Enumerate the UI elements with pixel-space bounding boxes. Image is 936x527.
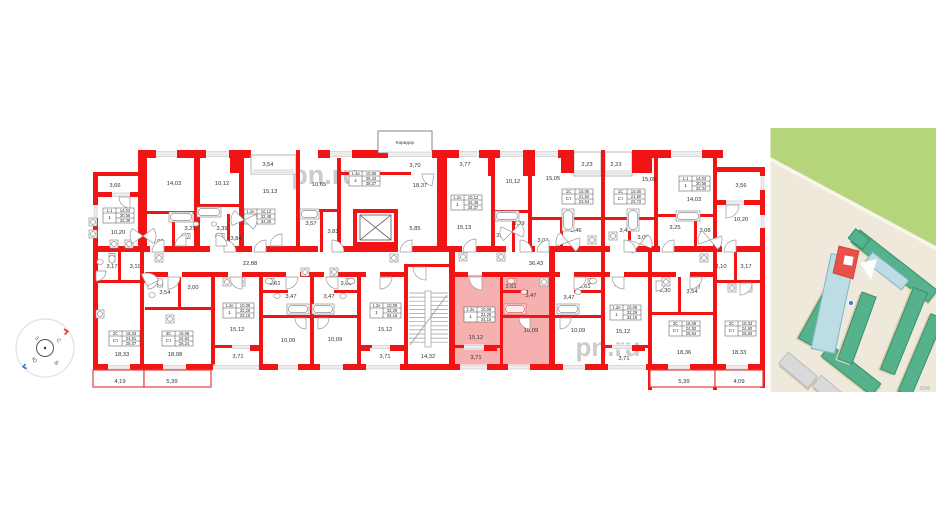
svg-text:3,47: 3,47 [563,295,574,301]
svg-text:3,54: 3,54 [262,162,274,168]
svg-text:1: 1 [456,202,459,208]
svg-text:1.1: 1.1 [107,208,113,213]
svg-text:14,03: 14,03 [167,181,182,187]
svg-text:3,71: 3,71 [379,354,390,360]
svg-text:10,09: 10,09 [524,328,539,334]
svg-text:5,39: 5,39 [166,379,177,385]
svg-text:1.2е: 1.2е [612,305,621,310]
svg-text:1.2е: 1.2е [466,307,475,312]
svg-text:3,47: 3,47 [323,294,334,300]
svg-text:34,15: 34,15 [627,315,638,320]
svg-text:1.4а: 1.4а [351,171,360,176]
svg-text:1.1: 1.1 [683,176,689,181]
svg-text:1: 1 [615,312,618,318]
svg-text:Ст: Ст [729,328,735,334]
svg-text:4: 4 [354,178,357,184]
svg-text:1: 1 [108,215,111,221]
svg-text:3,61: 3,61 [505,284,516,290]
svg-text:3,54: 3,54 [159,290,171,296]
svg-text:10,12: 10,12 [215,181,230,187]
svg-text:3,84: 3,84 [230,236,242,242]
svg-text:2GIS: 2GIS [920,386,930,391]
svg-text:34,15: 34,15 [387,313,398,318]
svg-text:2,23: 2,23 [610,162,621,168]
svg-text:3,47: 3,47 [525,293,536,299]
svg-text:34,15: 34,15 [481,317,492,322]
svg-text:25,07: 25,07 [126,341,137,346]
svg-text:38,27: 38,27 [366,181,377,186]
svg-text:3,57: 3,57 [305,221,316,227]
svg-text:4,09: 4,09 [733,379,744,385]
svg-text:34,25: 34,25 [261,219,272,224]
svg-text:3,83: 3,83 [327,229,338,235]
svg-text:3,70: 3,70 [409,163,420,169]
svg-text:18,37: 18,37 [413,183,428,189]
svg-text:15,05: 15,05 [546,176,561,182]
svg-text:3,71: 3,71 [232,354,243,360]
svg-text:15,13: 15,13 [263,189,278,195]
svg-text:1.2е: 1.2е [453,195,462,200]
svg-text:10,09: 10,09 [281,338,296,344]
svg-text:1: 1 [228,310,231,316]
svg-text:10,20: 10,20 [111,230,126,236]
svg-text:3,71: 3,71 [618,356,629,362]
svg-text:15,05: 15,05 [642,177,657,183]
svg-text:3,17: 3,17 [106,264,117,270]
svg-text:2С: 2С [729,321,734,326]
svg-text:25,83: 25,83 [742,331,753,336]
svg-text:3,71: 3,71 [470,355,481,361]
svg-text:3,39: 3,39 [216,226,227,232]
svg-text:15,12: 15,12 [469,335,484,341]
svg-text:22,64: 22,64 [579,199,590,204]
svg-text:18,08: 18,08 [168,352,183,358]
svg-text:1.2е: 1.2е [246,209,255,214]
svg-text:Ст: Ст [566,196,572,202]
svg-text:36,43: 36,43 [529,261,544,267]
svg-text:Ст: Ст [673,328,679,334]
svg-text:Коридор: Коридор [396,140,415,145]
svg-text:10,09: 10,09 [328,337,343,343]
svg-text:2,23: 2,23 [581,162,592,168]
svg-text:5,85: 5,85 [409,226,420,232]
svg-text:18,33: 18,33 [115,352,130,358]
svg-text:Ст: Ст [166,338,172,344]
svg-text:3,11: 3,11 [130,264,141,270]
svg-text:3С: 3С [166,331,171,336]
svg-text:22,88: 22,88 [243,261,258,267]
svg-text:1: 1 [375,310,378,316]
svg-text:34,15: 34,15 [240,313,251,318]
svg-text:32,34: 32,34 [696,186,707,191]
svg-text:1.2е: 1.2е [225,303,234,308]
svg-text:3,47: 3,47 [285,294,296,300]
svg-text:1С: 1С [618,189,623,194]
svg-text:15,12: 15,12 [378,327,393,333]
svg-text:15,13: 15,13 [457,225,472,231]
svg-text:3,25: 3,25 [669,225,680,231]
svg-text:1: 1 [469,314,472,320]
svg-text:18,36: 18,36 [677,350,692,356]
svg-text:5,39: 5,39 [678,379,689,385]
svg-text:Ст: Ст [618,196,624,202]
svg-text:3,10: 3,10 [715,264,726,270]
svg-text:2С: 2С [113,331,118,336]
svg-text:15,12: 15,12 [230,327,245,333]
svg-text:3,00: 3,00 [187,285,198,291]
svg-text:3,54: 3,54 [686,289,698,295]
svg-text:14,03: 14,03 [687,197,702,203]
svg-text:3,77: 3,77 [459,162,470,168]
svg-text:10,12: 10,12 [506,179,521,185]
svg-text:32,39: 32,39 [120,218,131,223]
svg-text:18,33: 18,33 [732,350,747,356]
svg-text:10,20: 10,20 [734,217,749,223]
svg-text:26,54: 26,54 [686,331,697,336]
svg-text:10,09: 10,09 [571,328,586,334]
svg-text:Ст: Ст [113,338,119,344]
svg-text:3,17: 3,17 [740,264,751,270]
svg-text:26,24: 26,24 [179,341,190,346]
svg-text:3,25: 3,25 [184,226,195,232]
svg-text:1: 1 [684,183,687,189]
svg-text:15,12: 15,12 [616,329,631,335]
svg-text:10,65: 10,65 [312,182,327,188]
svg-text:1С: 1С [566,189,571,194]
svg-text:1.2е: 1.2е [372,303,381,308]
svg-text:34,37: 34,37 [468,205,479,210]
svg-text:4,19: 4,19 [114,379,125,385]
svg-text:3,56: 3,56 [735,183,746,189]
svg-text:14,32: 14,32 [421,354,436,360]
svg-text:3С: 3С [673,321,678,326]
svg-text:3,66: 3,66 [109,183,120,189]
svg-text:22,72: 22,72 [631,199,642,204]
